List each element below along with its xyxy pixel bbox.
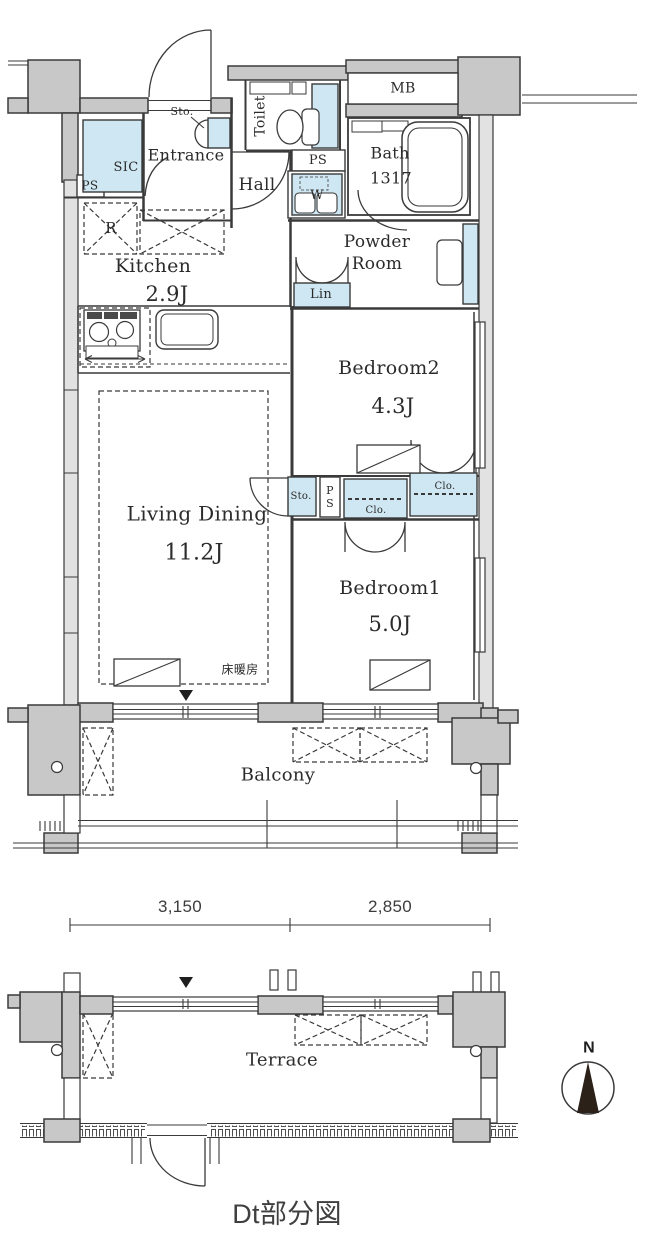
label-dimension-right: 2,850 xyxy=(368,898,412,916)
vanity-counter xyxy=(463,224,478,304)
bath-door xyxy=(358,190,407,230)
label-closet-lower: Clo. xyxy=(365,506,386,517)
window-bedroom1-terrace xyxy=(323,997,438,1011)
label-refrigerator: R xyxy=(105,221,117,237)
living-window-step xyxy=(114,659,180,686)
label-floor-heating: 床暖房 xyxy=(222,664,259,677)
label-living-dining: Living Dining xyxy=(127,504,268,525)
entrance-storage xyxy=(208,118,230,148)
window-right-bedroom1 xyxy=(475,558,485,652)
sink-icon xyxy=(156,310,218,349)
terrace-gate xyxy=(132,1125,219,1186)
closet2-doors xyxy=(411,440,476,473)
label-sto-entrance: Sto. xyxy=(170,106,193,118)
label-powder-room-2: Room xyxy=(352,256,403,274)
terrace-fence xyxy=(20,1119,518,1186)
floor-heating-zone xyxy=(99,391,268,684)
label-bath-size: 1317 xyxy=(370,171,412,188)
label-bedroom2-size: 4.3J xyxy=(371,395,414,417)
label-toilet: Toilet xyxy=(254,95,269,136)
label-linen: Lin xyxy=(310,288,332,302)
stove-icon xyxy=(84,310,140,358)
label-entrance: Entrance xyxy=(148,148,225,165)
window-right-bedroom2 xyxy=(475,322,485,468)
entrance-storage-door xyxy=(195,120,208,148)
label-meter-box: MB xyxy=(390,82,415,97)
label-bedroom2: Bedroom2 xyxy=(338,359,440,379)
label-kitchen: Kitchen xyxy=(115,257,191,277)
label-closet-upper: Clo. xyxy=(434,482,455,493)
entry-markers xyxy=(179,690,193,988)
window-living-balcony xyxy=(113,704,258,719)
label-kitchen-size: 2.9J xyxy=(145,283,188,305)
dimension-line xyxy=(70,918,490,932)
label-powder-room-1: Powder xyxy=(344,234,410,252)
label-bedroom1: Bedroom1 xyxy=(339,579,441,599)
ac-unit-balcony-1 xyxy=(83,728,113,795)
bedroom2-slide-door xyxy=(357,445,420,473)
window-bedroom1-balcony xyxy=(323,704,438,719)
label-hall: Hall xyxy=(238,177,275,195)
ac-unit-balcony-3 xyxy=(360,728,427,762)
ac-unit-terrace-1 xyxy=(83,1013,113,1078)
window-living-terrace xyxy=(113,997,258,1011)
triangle-marker-terrace xyxy=(179,977,193,988)
label-living-size: 11.2J xyxy=(164,541,223,564)
compass-icon xyxy=(562,1062,614,1114)
label-north: N xyxy=(583,1041,595,1058)
closet1-doors xyxy=(345,522,405,552)
label-terrace: Terrace xyxy=(246,1052,318,1071)
washbasin-icon xyxy=(437,240,462,285)
triangle-marker-balcony xyxy=(179,690,193,701)
label-ps-mid: PS xyxy=(324,484,337,510)
label-dimension-left: 3,150 xyxy=(158,898,202,916)
bathtub-icon xyxy=(352,121,468,212)
label-ps-top: PS xyxy=(309,154,327,168)
label-sic: SIC xyxy=(114,161,139,175)
label-balcony: Balcony xyxy=(241,767,316,786)
linen-doors xyxy=(296,257,348,283)
label-bath: Bath xyxy=(370,146,409,163)
ac-unit-terrace-3 xyxy=(361,1015,427,1045)
ac-unit-balcony-2 xyxy=(293,728,360,762)
cupboard-space xyxy=(140,210,224,254)
label-ps-left: PS xyxy=(82,180,99,193)
floor-plan: MB Sto. Toilet SIC PS Entrance Hall PS W… xyxy=(0,0,650,1247)
balcony-railing xyxy=(13,800,518,848)
label-bedroom1-size: 5.0J xyxy=(368,613,411,635)
label-washer: W xyxy=(310,189,324,203)
bedroom1-window-step xyxy=(370,660,430,690)
ac-unit-terrace-2 xyxy=(295,1015,361,1045)
plan-caption: Dt部分図 xyxy=(232,1200,342,1228)
entrance-door xyxy=(149,30,211,97)
label-sto-living: Sto. xyxy=(290,492,311,503)
